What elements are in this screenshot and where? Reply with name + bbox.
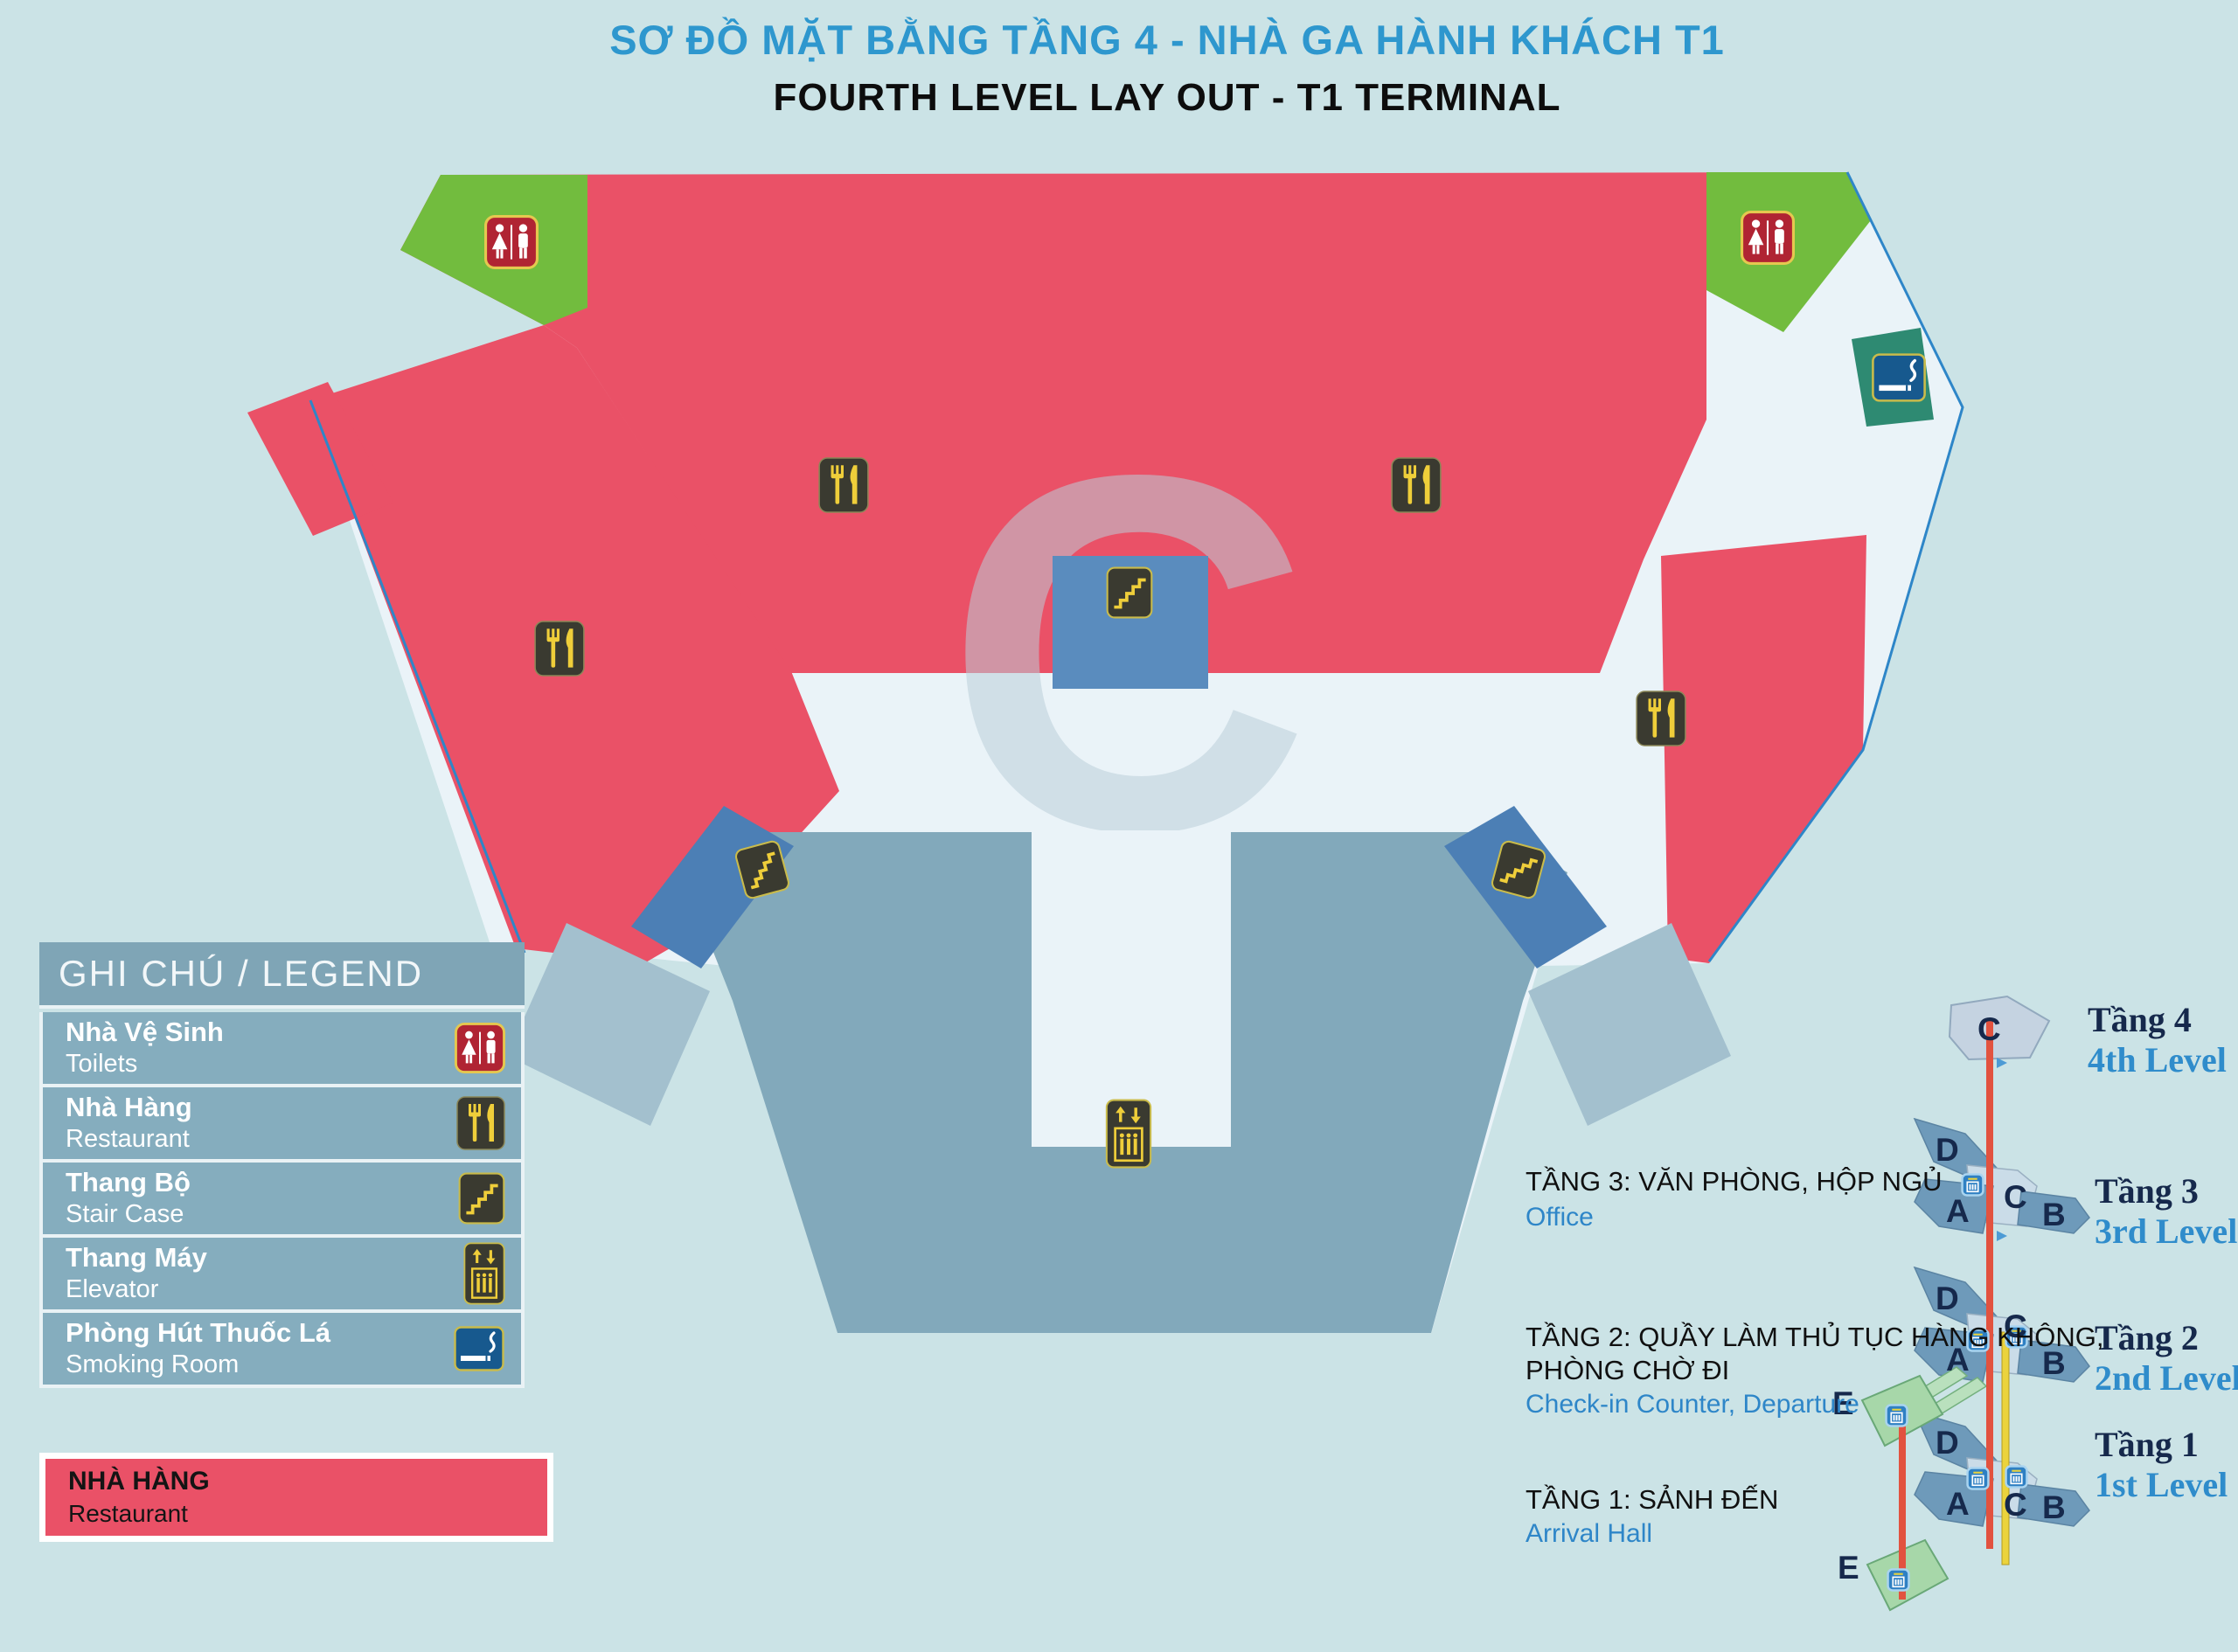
restaurant-icon [819,458,868,512]
legend-item-smoking: Phòng Hút Thuốc Lá Smoking Room [43,1313,521,1385]
restaurant-icon [1637,691,1685,746]
floor-plan-page: SƠ ĐỒ MẶT BẰNG TẦNG 4 - NHÀ GA HÀNH KHÁC… [0,0,2238,1652]
toilets-icon [1742,212,1794,264]
elevator-icon [463,1242,505,1305]
svg-text:Tầng 4: Tầng 4 [2088,1000,2192,1039]
level2-annotation-vi-line2: PHÒNG CHỜ ĐI [1526,1355,1729,1385]
mini-elevator-icon [2006,1467,2027,1488]
level1-annotation-en: Arrival Hall [1526,1519,1652,1548]
svg-text:D: D [1936,1425,1959,1461]
level4-letter-c: C [1977,1011,2001,1047]
legend-body: Nhà Vệ Sinh Toilets Nhà Hàng Restaurant … [39,1012,525,1388]
legend-item-restaurant: Nhà Hàng Restaurant [43,1087,521,1159]
restaurant-zone-right-wing [1661,535,1866,963]
mini-elevator-icon [1968,1468,1989,1489]
smoking-icon [1873,355,1924,401]
mini-elevator-icon [1887,1406,1908,1426]
svg-text:C: C [2004,1179,2027,1215]
shaft-arrow-2 [1997,1231,2007,1241]
legend-item-toilets: Nhà Vệ Sinh Toilets [43,1012,521,1084]
smoking-icon [453,1326,505,1371]
svg-text:A: A [1946,1486,1970,1522]
svg-text:3rd Level: 3rd Level [2095,1211,2237,1251]
restaurant-key-box: NHÀ HÀNG Restaurant [39,1453,553,1542]
elevator-shaft-yellow [2002,1332,2009,1565]
restaurant-key-en: Restaurant [68,1500,547,1528]
legend-label-en: Toilets [66,1049,224,1079]
level3-annotation-en: Office [1526,1203,1594,1232]
legend-label-en: Smoking Room [66,1350,330,1380]
legend-item-staircase: Thang Bộ Stair Case [43,1163,521,1234]
restaurant-key-vi: NHÀ HÀNG [68,1467,547,1496]
stairs-icon [1108,568,1152,618]
restaurant-icon [535,621,584,676]
legend-item-elevator: Thang Máy Elevator [43,1238,521,1309]
legend-panel: GHI CHÚ / LEGEND Nhà Vệ Sinh Toilets Nhà… [39,942,525,1388]
svg-text:A: A [1946,1193,1970,1229]
svg-text:Tầng 2: Tầng 2 [2095,1318,2199,1357]
toilets-icon [455,1023,505,1073]
floor-labels: Tầng 4 4th Level Tầng 3 3rd Level Tầng 2… [2088,1000,2238,1504]
level2-annotation-en: Check-in Counter, Departure [1526,1390,1859,1419]
svg-text:D: D [1936,1132,1959,1168]
floor-plan-map: C [0,0,2238,1652]
level1-e-letter: E [1838,1550,1859,1586]
elevator-icon [1107,1100,1150,1168]
stairs-icon [458,1172,505,1225]
legend-label-en: Elevator [66,1274,207,1305]
level3-annotation-vi: TẦNG 3: VĂN PHÒNG, HỘP NGỦ [1526,1165,1943,1197]
legend-label-vi: Nhà Vệ Sinh [66,1016,224,1049]
restaurant-icon [1392,458,1441,512]
svg-text:C: C [2004,1487,2027,1523]
mini-elevator-icon [1963,1175,1984,1196]
svg-text:4th Level: 4th Level [2088,1040,2227,1079]
legend-label-en: Restaurant [66,1124,192,1155]
level1-annotation-vi: TẦNG 1: SẢNH ĐẾN [1526,1484,1778,1515]
mini-elevator-icon [1888,1570,1909,1591]
svg-text:Tầng 3: Tầng 3 [2095,1171,2199,1211]
svg-text:B: B [2042,1489,2066,1525]
legend-label-vi: Thang Bộ [66,1166,191,1199]
svg-text:1st Level: 1st Level [2095,1465,2228,1504]
svg-text:Tầng 1: Tầng 1 [2095,1425,2199,1464]
legend-label-vi: Nhà Hàng [66,1091,192,1124]
svg-text:B: B [2042,1197,2066,1232]
legend-label-vi: Phòng Hút Thuốc Lá [66,1316,330,1350]
restaurant-icon [456,1096,505,1150]
toilets-icon [486,217,538,268]
svg-text:2nd Level: 2nd Level [2095,1358,2238,1398]
legend-label-vi: Thang Máy [66,1241,207,1274]
svg-text:D: D [1936,1281,1959,1316]
level2-annotation-vi-line1: TẦNG 2: QUẦY LÀM THỦ TỤC HÀNG KHÔNG, [1526,1321,2103,1352]
legend-label-en: Stair Case [66,1199,191,1230]
legend-title: GHI CHÚ / LEGEND [39,942,525,1009]
